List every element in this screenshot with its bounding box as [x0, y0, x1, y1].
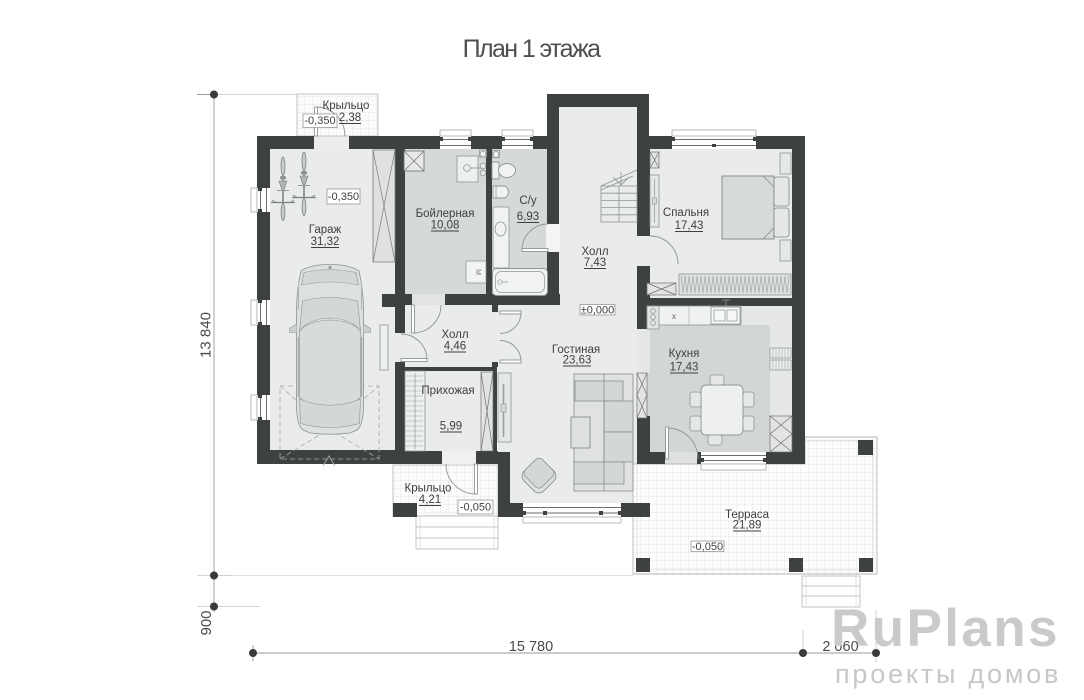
svg-text:Прихожая: Прихожая: [421, 385, 474, 397]
svg-text:2,38: 2,38: [339, 112, 361, 124]
svg-text:Кухня: Кухня: [669, 348, 700, 360]
svg-text:10,08: 10,08: [431, 220, 460, 232]
svg-text:6,93: 6,93: [517, 211, 539, 223]
svg-text:17,43: 17,43: [675, 220, 704, 232]
svg-text:4,21: 4,21: [419, 494, 441, 506]
svg-text:Гараж: Гараж: [309, 224, 342, 236]
svg-text:23,63: 23,63: [563, 355, 592, 367]
svg-text:5,99: 5,99: [440, 421, 462, 433]
svg-text:Спальня: Спальня: [663, 207, 709, 219]
svg-text:x: x: [672, 312, 676, 321]
svg-text:М: М: [474, 269, 481, 275]
svg-text:-0,050: -0,050: [460, 502, 491, 514]
svg-text:4,46: 4,46: [444, 341, 466, 353]
svg-text:900: 900: [198, 610, 215, 635]
svg-text:31,32: 31,32: [311, 236, 340, 248]
svg-text:21,89: 21,89: [733, 520, 762, 532]
svg-text:Холл: Холл: [441, 329, 468, 341]
svg-text:-0,050: -0,050: [692, 541, 723, 553]
svg-text:13 840: 13 840: [198, 312, 215, 358]
svg-text:проекты домов: проекты домов: [835, 659, 1061, 689]
svg-text:Бойлерная: Бойлерная: [416, 208, 475, 220]
svg-text:С/у: С/у: [519, 195, 537, 207]
svg-text:±0,000: ±0,000: [581, 305, 615, 317]
svg-text:-0,350: -0,350: [304, 115, 335, 127]
svg-text:Крыльцо: Крыльцо: [323, 100, 370, 112]
svg-text:7,43: 7,43: [584, 257, 606, 269]
svg-text:17,43: 17,43: [670, 362, 699, 374]
svg-text:15 780: 15 780: [509, 639, 553, 655]
svg-text:-0,350: -0,350: [328, 191, 359, 203]
svg-text:Крыльцо: Крыльцо: [405, 483, 452, 495]
svg-text:План 1 этажа: План 1 этажа: [463, 35, 601, 63]
svg-text:RuPlans: RuPlans: [831, 599, 1060, 658]
